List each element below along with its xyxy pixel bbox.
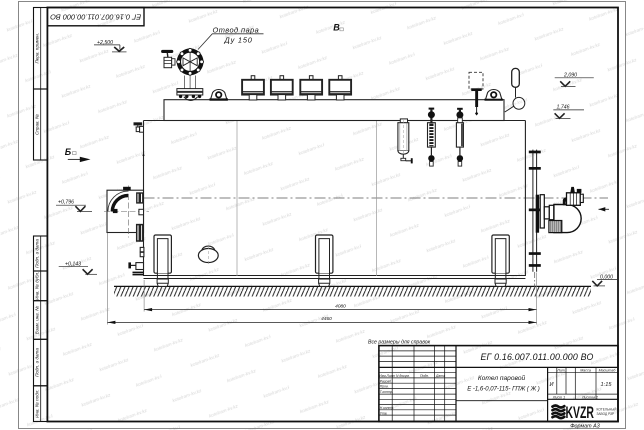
svg-text:Масштаб: Масштаб xyxy=(599,369,617,373)
svg-text:ЕГ 0.16.007.011.00.000 ВО: ЕГ 0.16.007.011.00.000 ВО xyxy=(50,13,141,22)
svg-text:Инв. № дубл.: Инв. № дубл. xyxy=(35,272,40,300)
svg-text:ЕГ 0.16.007.011.00.000 ВО: ЕГ 0.16.007.011.00.000 ВО xyxy=(480,352,593,362)
svg-text:Разраб.: Разраб. xyxy=(380,379,392,383)
svg-text:Котел паровой: Котел паровой xyxy=(478,374,526,382)
svg-text:Е -1,6-0,07-115- ГПЖ ( Ж ): Е -1,6-0,07-115- ГПЖ ( Ж ) xyxy=(467,387,540,393)
svg-text:Ду 150: Ду 150 xyxy=(224,35,253,44)
svg-text:В: В xyxy=(333,23,340,33)
svg-text:Масса: Масса xyxy=(580,369,591,373)
svg-text:Взам. инв. №: Взам. инв. № xyxy=(35,306,40,334)
svg-text:Лист 1: Лист 1 xyxy=(552,395,565,399)
svg-text:Н.контр.: Н.контр. xyxy=(380,406,394,410)
svg-text:Перв. примен.: Перв. примен. xyxy=(35,33,40,64)
svg-text:Инв. № подл.: Инв. № подл. xyxy=(35,389,40,418)
svg-text:KVZR: KVZR xyxy=(566,404,595,422)
svg-text:Б: Б xyxy=(65,147,72,157)
svg-text:КОТЕЛЬНЫЙ: КОТЕЛЬНЫЙ xyxy=(597,408,618,412)
svg-text:Подп.: Подп. xyxy=(420,374,429,378)
svg-text:Дата: Дата xyxy=(435,374,445,378)
svg-text:1:15: 1:15 xyxy=(601,382,613,388)
svg-text:И: И xyxy=(549,382,553,388)
svg-text:Пров.: Пров. xyxy=(380,385,389,389)
svg-text:Подп. и дата: Подп. и дата xyxy=(35,239,40,268)
svg-text:Т.контр.: Т.контр. xyxy=(380,390,394,394)
svg-text:Справ. №: Справ. № xyxy=(35,114,40,135)
svg-text:Формат А3: Формат А3 xyxy=(570,424,600,430)
svg-text:Подп. и дата: Подп. и дата xyxy=(35,348,40,377)
svg-text:Листов 2: Листов 2 xyxy=(581,395,598,399)
svg-text:4460: 4460 xyxy=(321,316,332,322)
svg-text:Изм.Лист: Изм.Лист xyxy=(379,374,395,378)
svg-text:+0,796: +0,796 xyxy=(58,199,74,205)
svg-text:Утв.: Утв. xyxy=(380,411,388,415)
svg-text:4080: 4080 xyxy=(335,303,346,309)
svg-text:Лит.: Лит. xyxy=(556,369,565,373)
svg-text:Все размеры для справок: Все размеры для справок xyxy=(368,339,431,345)
svg-text:N докум.: N докум. xyxy=(396,374,410,378)
svg-text:ЗАВОД РЗР: ЗАВОД РЗР xyxy=(597,412,615,416)
svg-text:Отвод пара: Отвод пара xyxy=(213,26,260,35)
